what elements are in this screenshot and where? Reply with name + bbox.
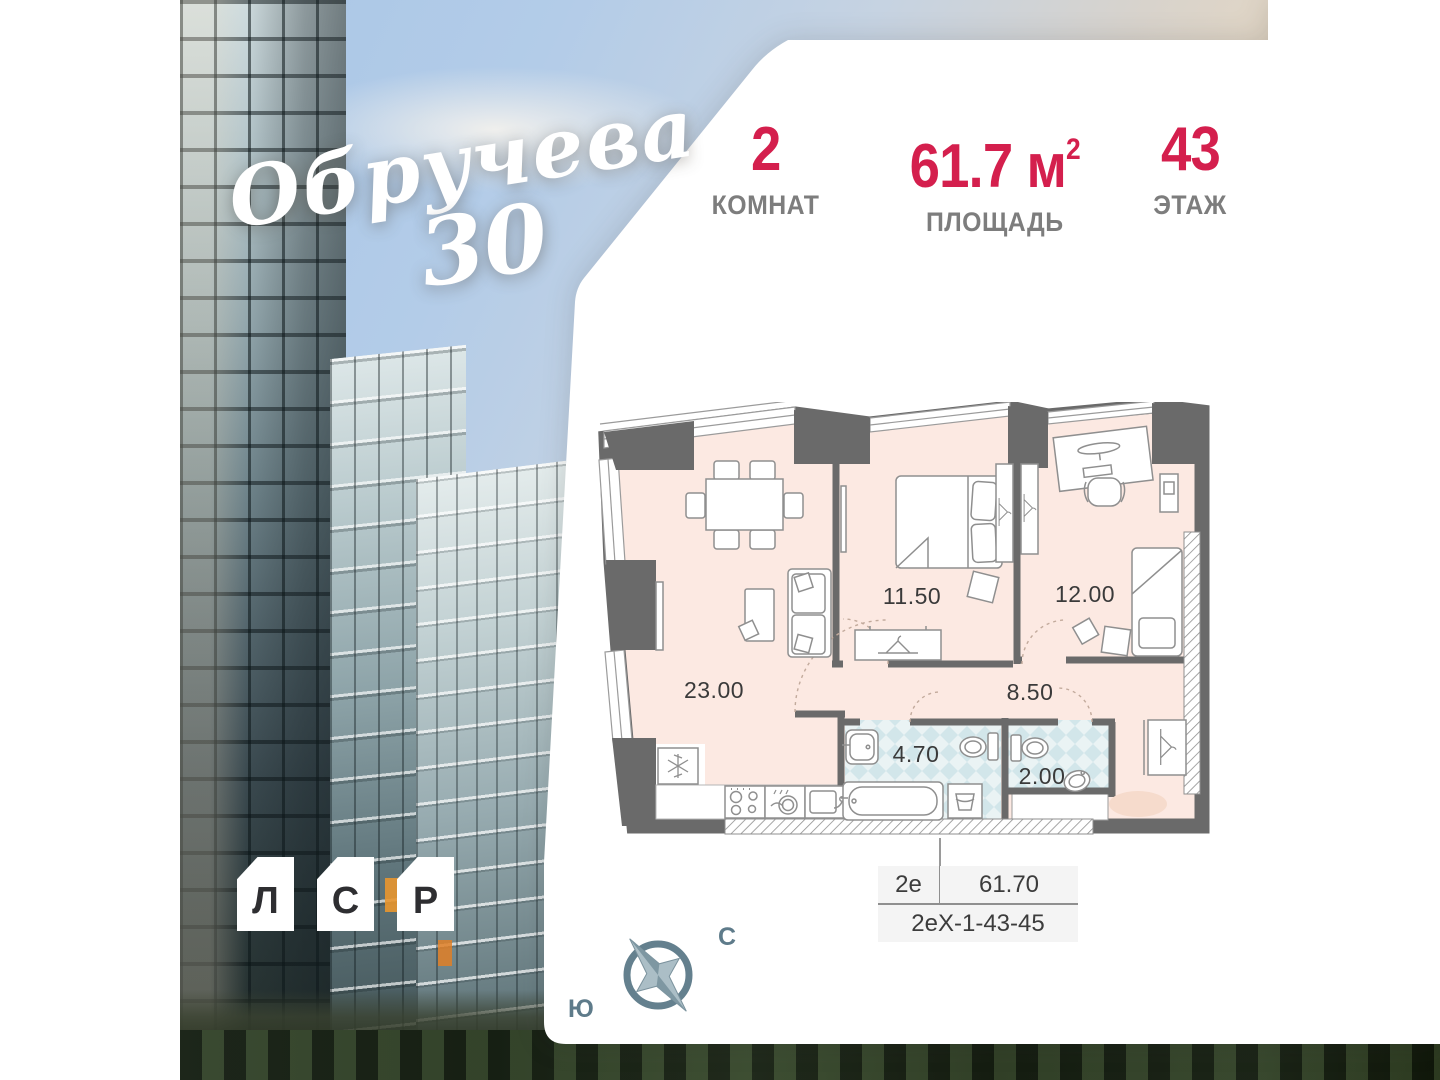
stat-floor: 43 ЭТАЖ (1110, 118, 1270, 221)
fridge-icon (658, 748, 698, 784)
compass-icon: С Ю (560, 905, 760, 1045)
lsr-cube: С (317, 857, 374, 931)
bedroom2-area-label: 12.00 (1055, 581, 1115, 607)
lit-window (438, 940, 452, 966)
stat-rooms: 2 КОМНАТ (666, 118, 866, 221)
rooms-label: КОМНАТ (712, 190, 820, 221)
tv-icon (656, 582, 663, 650)
compass-south-label: Ю (568, 995, 594, 1023)
rug-icon (1109, 791, 1167, 817)
washer-icon (948, 784, 982, 818)
double-bed-icon (896, 476, 1002, 568)
lsr-cube: Р (397, 857, 454, 931)
compass-north-label: С (718, 923, 736, 951)
lot-type-cell: 2е (878, 866, 940, 903)
lot-info-table: 2е 61.70 2еХ-1-43-45 (878, 866, 1078, 942)
stat-area: 61.7 м2 ПЛОЩАДЬ (875, 118, 1115, 238)
niche (1012, 794, 1108, 820)
shelf-icon (1160, 474, 1178, 512)
lsr-letter: Р (413, 871, 438, 931)
floor-value: 43 (1161, 118, 1220, 182)
dresser-icon (855, 626, 941, 660)
hall-wardrobe-icon (1144, 720, 1186, 775)
dishwasher-icon (765, 786, 805, 818)
wc-area-label: 2.00 (1019, 763, 1066, 789)
nightstand-icon (1101, 626, 1130, 655)
table-row: 2е 61.70 (878, 866, 1078, 905)
bath-sink-icon (842, 730, 878, 764)
floor-plan: 23.00 11.50 12.00 8.50 4.70 2.00 (598, 402, 1210, 838)
bathroom-area-label: 4.70 (893, 741, 940, 767)
area-value: 61.7 м (910, 132, 1066, 201)
hall-area-label: 8.50 (1007, 679, 1054, 705)
nightstand-icon (967, 571, 999, 603)
bedroom1-area-label: 11.50 (883, 583, 941, 609)
sofa-icon (788, 569, 831, 657)
lsr-letter: Л (252, 871, 279, 931)
lsr-letter: С (332, 871, 359, 931)
bathtub-icon (841, 782, 943, 820)
stove-icon (725, 786, 765, 818)
lot-area-cell: 61.70 (940, 866, 1078, 903)
plan-table-connector (939, 838, 941, 866)
area-sup: 2 (1066, 133, 1080, 166)
trees-strip (180, 1030, 1440, 1080)
developer-logo: Л С Р (237, 857, 454, 931)
area-label: ПЛОЩАДЬ (926, 207, 1064, 238)
office-chair-icon (1084, 478, 1124, 506)
living-area-label: 23.00 (684, 677, 744, 703)
logo-number: 30 (412, 182, 555, 309)
lot-code-cell: 2еХ-1-43-45 (878, 905, 1078, 942)
floor-label: ЭТАЖ (1153, 190, 1227, 221)
single-bed-icon (1132, 548, 1182, 656)
rooms-value: 2 (751, 118, 780, 182)
terraced-block-lower (416, 461, 566, 1080)
lsr-cube: Л (237, 857, 294, 931)
tv-panel-icon (841, 486, 846, 552)
